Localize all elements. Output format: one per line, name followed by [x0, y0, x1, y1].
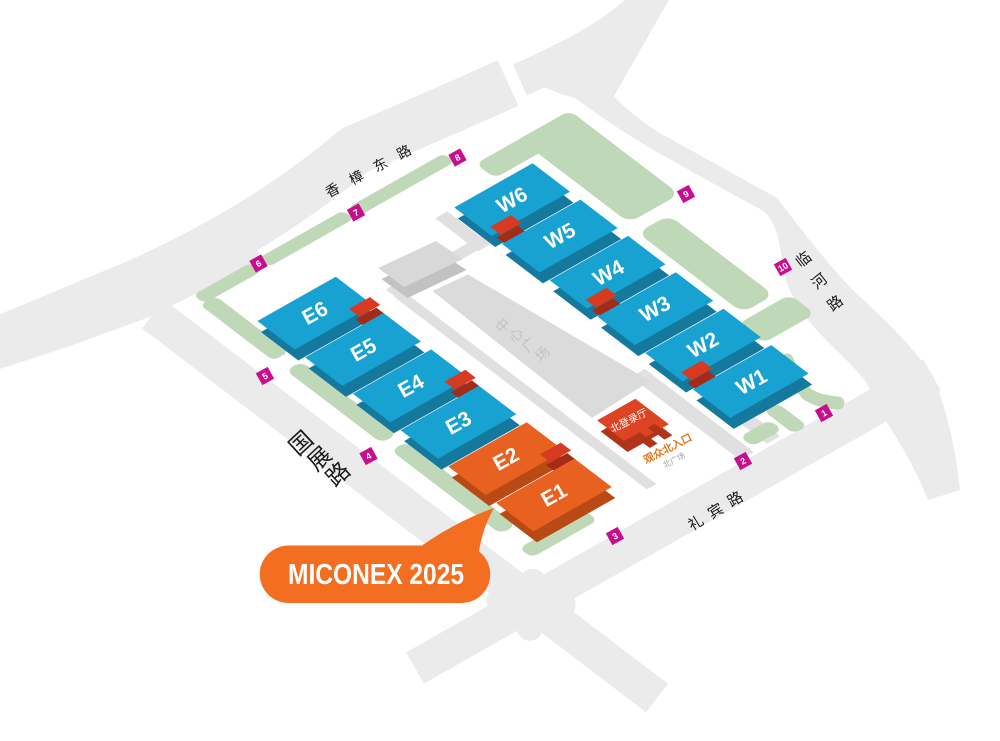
svg-text:MICONEX 2025: MICONEX 2025 [288, 559, 464, 591]
